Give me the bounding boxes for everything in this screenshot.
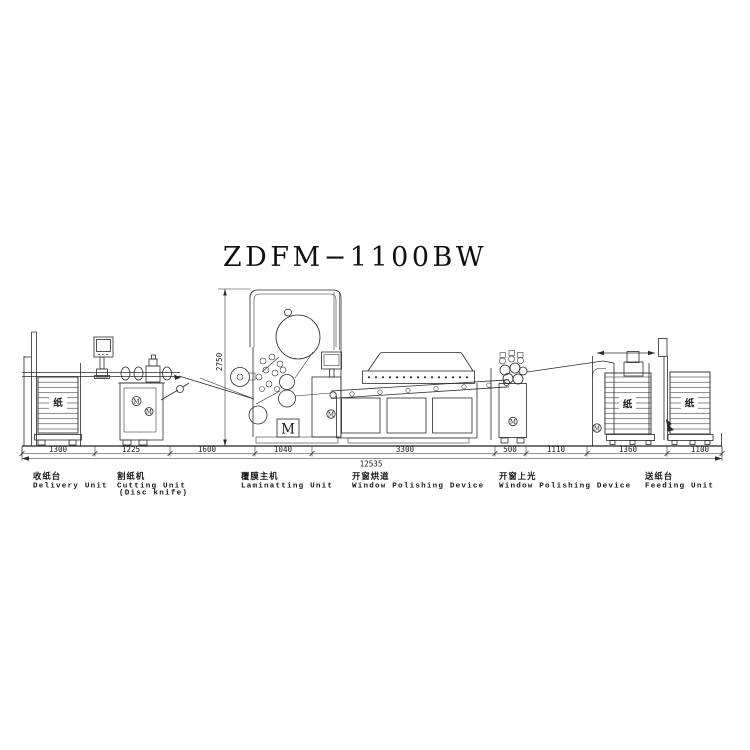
motor-label: M [594,425,600,432]
polish-roller [519,367,527,375]
roller [134,367,143,380]
label-feeding-unit: 送纸台 Feeding Unit [644,471,714,491]
motor-label: M [133,398,139,405]
unit-label-en: Delivery Unit [33,483,108,491]
duct [334,292,340,350]
drying-tunnel-unit [330,353,510,444]
label-cutting-unit: 割纸机 Cutting Unit (Disc knife) [117,471,188,498]
unit-label-en: Window Polishing Device [499,483,631,491]
polish-roller [510,363,520,373]
feeding-unit: 纸 纸 M [593,339,722,447]
unit-label-zh: 覆膜主机 [241,471,279,481]
dim-value: 3300 [396,445,415,454]
dim-value: 1360 [619,445,638,454]
paper-stack-label: 纸 [623,399,633,411]
diagram-title: ZDFM−1100BW [223,242,487,273]
cabinet-panel [433,398,473,433]
web-path [527,361,614,372]
hood [368,353,473,372]
dim-value: 1300 [49,445,68,454]
unit-label-en2: (Disc knife) [119,490,188,498]
nip-roller [279,390,296,407]
nozzle-dots [368,376,468,378]
paper-stack-label: 纸 [53,397,63,409]
laminating-drum [276,315,320,359]
motor-label: M [328,411,334,418]
film-roll [231,368,250,387]
polish-roller [513,374,523,384]
dimension-chain: 1300 1225 1600 1040 3300 500 1110 1360 1… [20,445,725,469]
web-path [179,376,254,399]
height-dimension: 2750 [215,289,250,446]
paper-stack-label: 纸 [685,398,695,410]
label-delivery-unit: 收纸台 Delivery Unit [33,471,108,491]
unit-label-en: Laminatting Unit [241,483,333,491]
unit-label-zh: 开窗烘道 [352,471,390,481]
delivery-unit: 纸 [22,332,180,446]
dim-value: 1040 [274,445,293,454]
cutting-unit: M M [118,355,254,445]
pallet [668,435,713,441]
cabinet-panel [342,398,381,433]
pallet [35,435,82,441]
overall-dim-value: 12535 [360,460,383,469]
blade-icon [174,375,181,380]
delivery-arm [161,383,189,400]
dim-value: 1100 [691,445,710,454]
unit-label-en: Window Polishing Device [352,483,484,491]
machine-line-diagram: ZDFM−1100BW 纸 M M [0,0,750,750]
drive-block [146,366,160,382]
unit-label-zh: 割纸机 [117,471,145,481]
unit-labels: 收纸台 Delivery Unit 割纸机 Cutting Unit (Disc… [33,471,714,498]
label-window-polishing: 开窗上光 Window Polishing Device [499,471,631,491]
laminating-unit: 2750 M M [200,289,342,446]
roller [121,367,130,380]
dim-value: 1225 [122,445,140,454]
unit-label-zh: 收纸台 [33,471,61,481]
unit-label-zh: 送纸台 [644,471,673,481]
top-cover [250,290,341,347]
nip-roller [249,406,267,424]
unit-label-zh: 开窗上光 [499,471,537,481]
frame-post [32,332,37,446]
unit-label-en: Feeding Unit [645,483,714,491]
conveyor-belt [331,380,509,399]
mast [664,356,668,440]
roller [163,367,172,380]
nip-roller [280,375,295,390]
height-dim-value: 2750 [215,352,224,371]
label-laminating-unit: 覆膜主机 Laminatting Unit [241,471,333,491]
dim-value: 1600 [198,445,217,454]
label-drying-tunnel: 开窗烘道 Window Polishing Device [352,471,484,491]
main-motor-label: M [281,422,295,438]
polish-roller [503,374,513,384]
cabinet-panel [387,398,426,433]
diagram-canvas: ZDFM−1100BW 纸 M M [0,0,750,750]
motor-label: M [510,419,516,426]
pallet [607,435,655,441]
dim-value: 500 [503,445,517,454]
motor-label: M [146,409,152,416]
dim-value: 1110 [547,445,566,454]
